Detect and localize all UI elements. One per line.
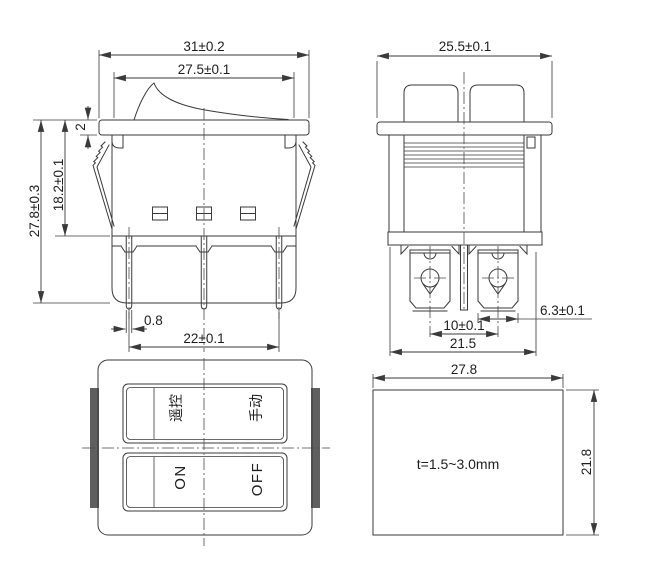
dim-front-rocker-width: 27.5±0.1 xyxy=(178,62,230,77)
drawing-page: 31±0.2 27.5±0.1 2 18.2±0.1 27.8±0.3 0.8 … xyxy=(0,0,663,573)
dim-side-body-width: 21.5 xyxy=(450,336,476,351)
front-view: 31±0.2 27.5±0.1 2 18.2±0.1 27.8±0.3 0.8 … xyxy=(27,39,315,352)
label-on: ON xyxy=(172,464,189,490)
dim-front-total-height: 27.8±0.3 xyxy=(27,185,42,237)
face-view: 遥控 手动 ON OFF xyxy=(82,358,330,546)
dim-side-terminal-width: 6.3±0.1 xyxy=(540,303,585,318)
dim-cutout-height: 21.8 xyxy=(579,449,594,475)
dim-cutout-width: 27.8 xyxy=(451,362,477,377)
panel-thickness-note: t=1.5~3.0mm xyxy=(417,456,500,472)
label-remote: 遥控 xyxy=(168,394,184,422)
dim-front-pin-thickness: 0.8 xyxy=(144,313,163,328)
side-view: 25.5±0.1 6.3±0.1 10±0.1 21.5 xyxy=(377,39,592,356)
dim-side-terminal-pitch: 10±0.1 xyxy=(443,318,484,333)
label-off: OFF xyxy=(249,462,266,497)
dim-front-flange-thickness: 2 xyxy=(73,123,88,131)
dim-side-flange-width: 25.5±0.1 xyxy=(439,39,491,54)
mount-clip-left xyxy=(93,142,114,229)
panel-cutout-view: t=1.5~3.0mm 27.8 21.8 xyxy=(373,362,599,535)
rocker-lower[interactable]: ON OFF xyxy=(123,453,287,511)
mount-clip-right xyxy=(294,142,315,229)
dim-front-pin-pitch: 22±0.1 xyxy=(183,331,224,346)
dim-front-body-depth: 18.2±0.1 xyxy=(51,159,66,211)
dim-front-flange-width: 31±0.2 xyxy=(183,39,224,54)
rocker-upper[interactable]: 遥控 手动 xyxy=(123,384,287,443)
label-manual: 手动 xyxy=(248,394,264,422)
rocker-switch-drawing: 31±0.2 27.5±0.1 2 18.2±0.1 27.8±0.3 0.8 … xyxy=(0,0,663,573)
